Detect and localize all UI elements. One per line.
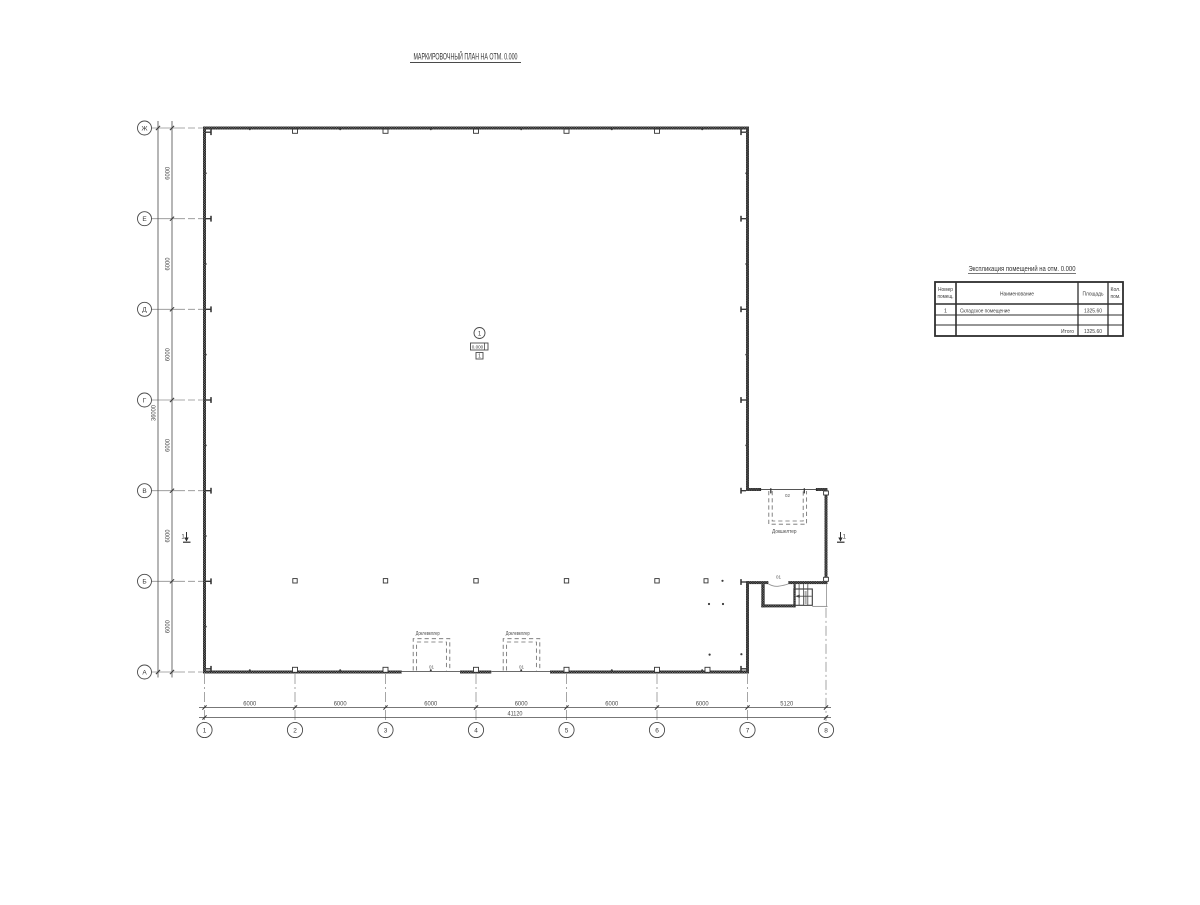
svg-text:6000: 6000 bbox=[605, 701, 619, 707]
svg-text:6: 6 bbox=[655, 728, 659, 735]
svg-text:6000: 6000 bbox=[515, 701, 529, 707]
svg-text:6000: 6000 bbox=[166, 619, 172, 633]
svg-text:Экспликация помещений на отм.: Экспликация помещений на отм. 0.000 bbox=[969, 265, 1076, 273]
svg-text:Площадь: Площадь bbox=[1083, 292, 1104, 298]
svg-text:1325.60: 1325.60 bbox=[1084, 329, 1102, 335]
svg-text:Г: Г bbox=[143, 397, 147, 404]
svg-text:А: А bbox=[142, 669, 147, 676]
svg-text:6000: 6000 bbox=[696, 701, 710, 707]
svg-text:помещ.: помещ. bbox=[938, 294, 954, 300]
svg-text:1: 1 bbox=[478, 354, 481, 360]
svg-text:6000: 6000 bbox=[166, 257, 172, 271]
svg-text:6000: 6000 bbox=[334, 701, 348, 707]
svg-text:3: 3 bbox=[384, 728, 388, 735]
svg-text:2: 2 bbox=[293, 728, 297, 735]
svg-text:0.000: 0.000 bbox=[472, 345, 484, 351]
svg-text:МАРКИРОВОЧНЫЙ ПЛАН НА ОТМ. 0.0: МАРКИРОВОЧНЫЙ ПЛАН НА ОТМ. 0.000 bbox=[414, 51, 518, 62]
svg-text:Складское помещение: Складское помещение bbox=[960, 308, 1010, 314]
svg-text:6000: 6000 bbox=[166, 166, 172, 180]
svg-text:Доклевеллер: Доклевеллер bbox=[506, 631, 530, 637]
svg-text:Кол.: Кол. bbox=[1111, 287, 1121, 293]
svg-text:01: 01 bbox=[776, 574, 782, 579]
svg-text:Д: Д bbox=[142, 307, 147, 314]
svg-text:02: 02 bbox=[785, 493, 791, 498]
svg-text:01: 01 bbox=[429, 664, 435, 669]
svg-text:6000: 6000 bbox=[166, 347, 172, 361]
svg-text:01: 01 bbox=[519, 664, 525, 669]
svg-text:6000: 6000 bbox=[424, 701, 438, 707]
svg-text:Ж: Ж bbox=[141, 125, 147, 132]
svg-text:Б: Б bbox=[142, 579, 146, 586]
svg-text:1325.60: 1325.60 bbox=[1084, 308, 1102, 314]
svg-text:1: 1 bbox=[944, 308, 947, 314]
svg-text:5: 5 bbox=[565, 728, 569, 735]
svg-text:Наименование: Наименование bbox=[1000, 292, 1034, 298]
svg-text:Е: Е bbox=[142, 216, 147, 223]
svg-text:7: 7 bbox=[746, 728, 750, 735]
svg-text:5120: 5120 bbox=[780, 701, 794, 707]
svg-text:1: 1 bbox=[203, 728, 207, 735]
svg-text:Итого: Итого bbox=[1061, 329, 1074, 335]
svg-text:Доклевеллер: Доклевеллер bbox=[416, 631, 440, 637]
svg-text:6000: 6000 bbox=[243, 701, 257, 707]
svg-text:Докшелтер: Докшелтер bbox=[772, 529, 797, 535]
svg-text:41120: 41120 bbox=[508, 711, 524, 717]
svg-text:В: В bbox=[142, 488, 146, 495]
svg-text:пом.: пом. bbox=[1111, 294, 1121, 300]
svg-text:6000: 6000 bbox=[166, 529, 172, 543]
svg-text:4: 4 bbox=[474, 728, 478, 735]
svg-text:36000: 36000 bbox=[152, 404, 158, 421]
svg-text:6000: 6000 bbox=[166, 438, 172, 452]
svg-text:8: 8 bbox=[824, 728, 828, 735]
svg-text:Номер: Номер bbox=[938, 287, 953, 293]
